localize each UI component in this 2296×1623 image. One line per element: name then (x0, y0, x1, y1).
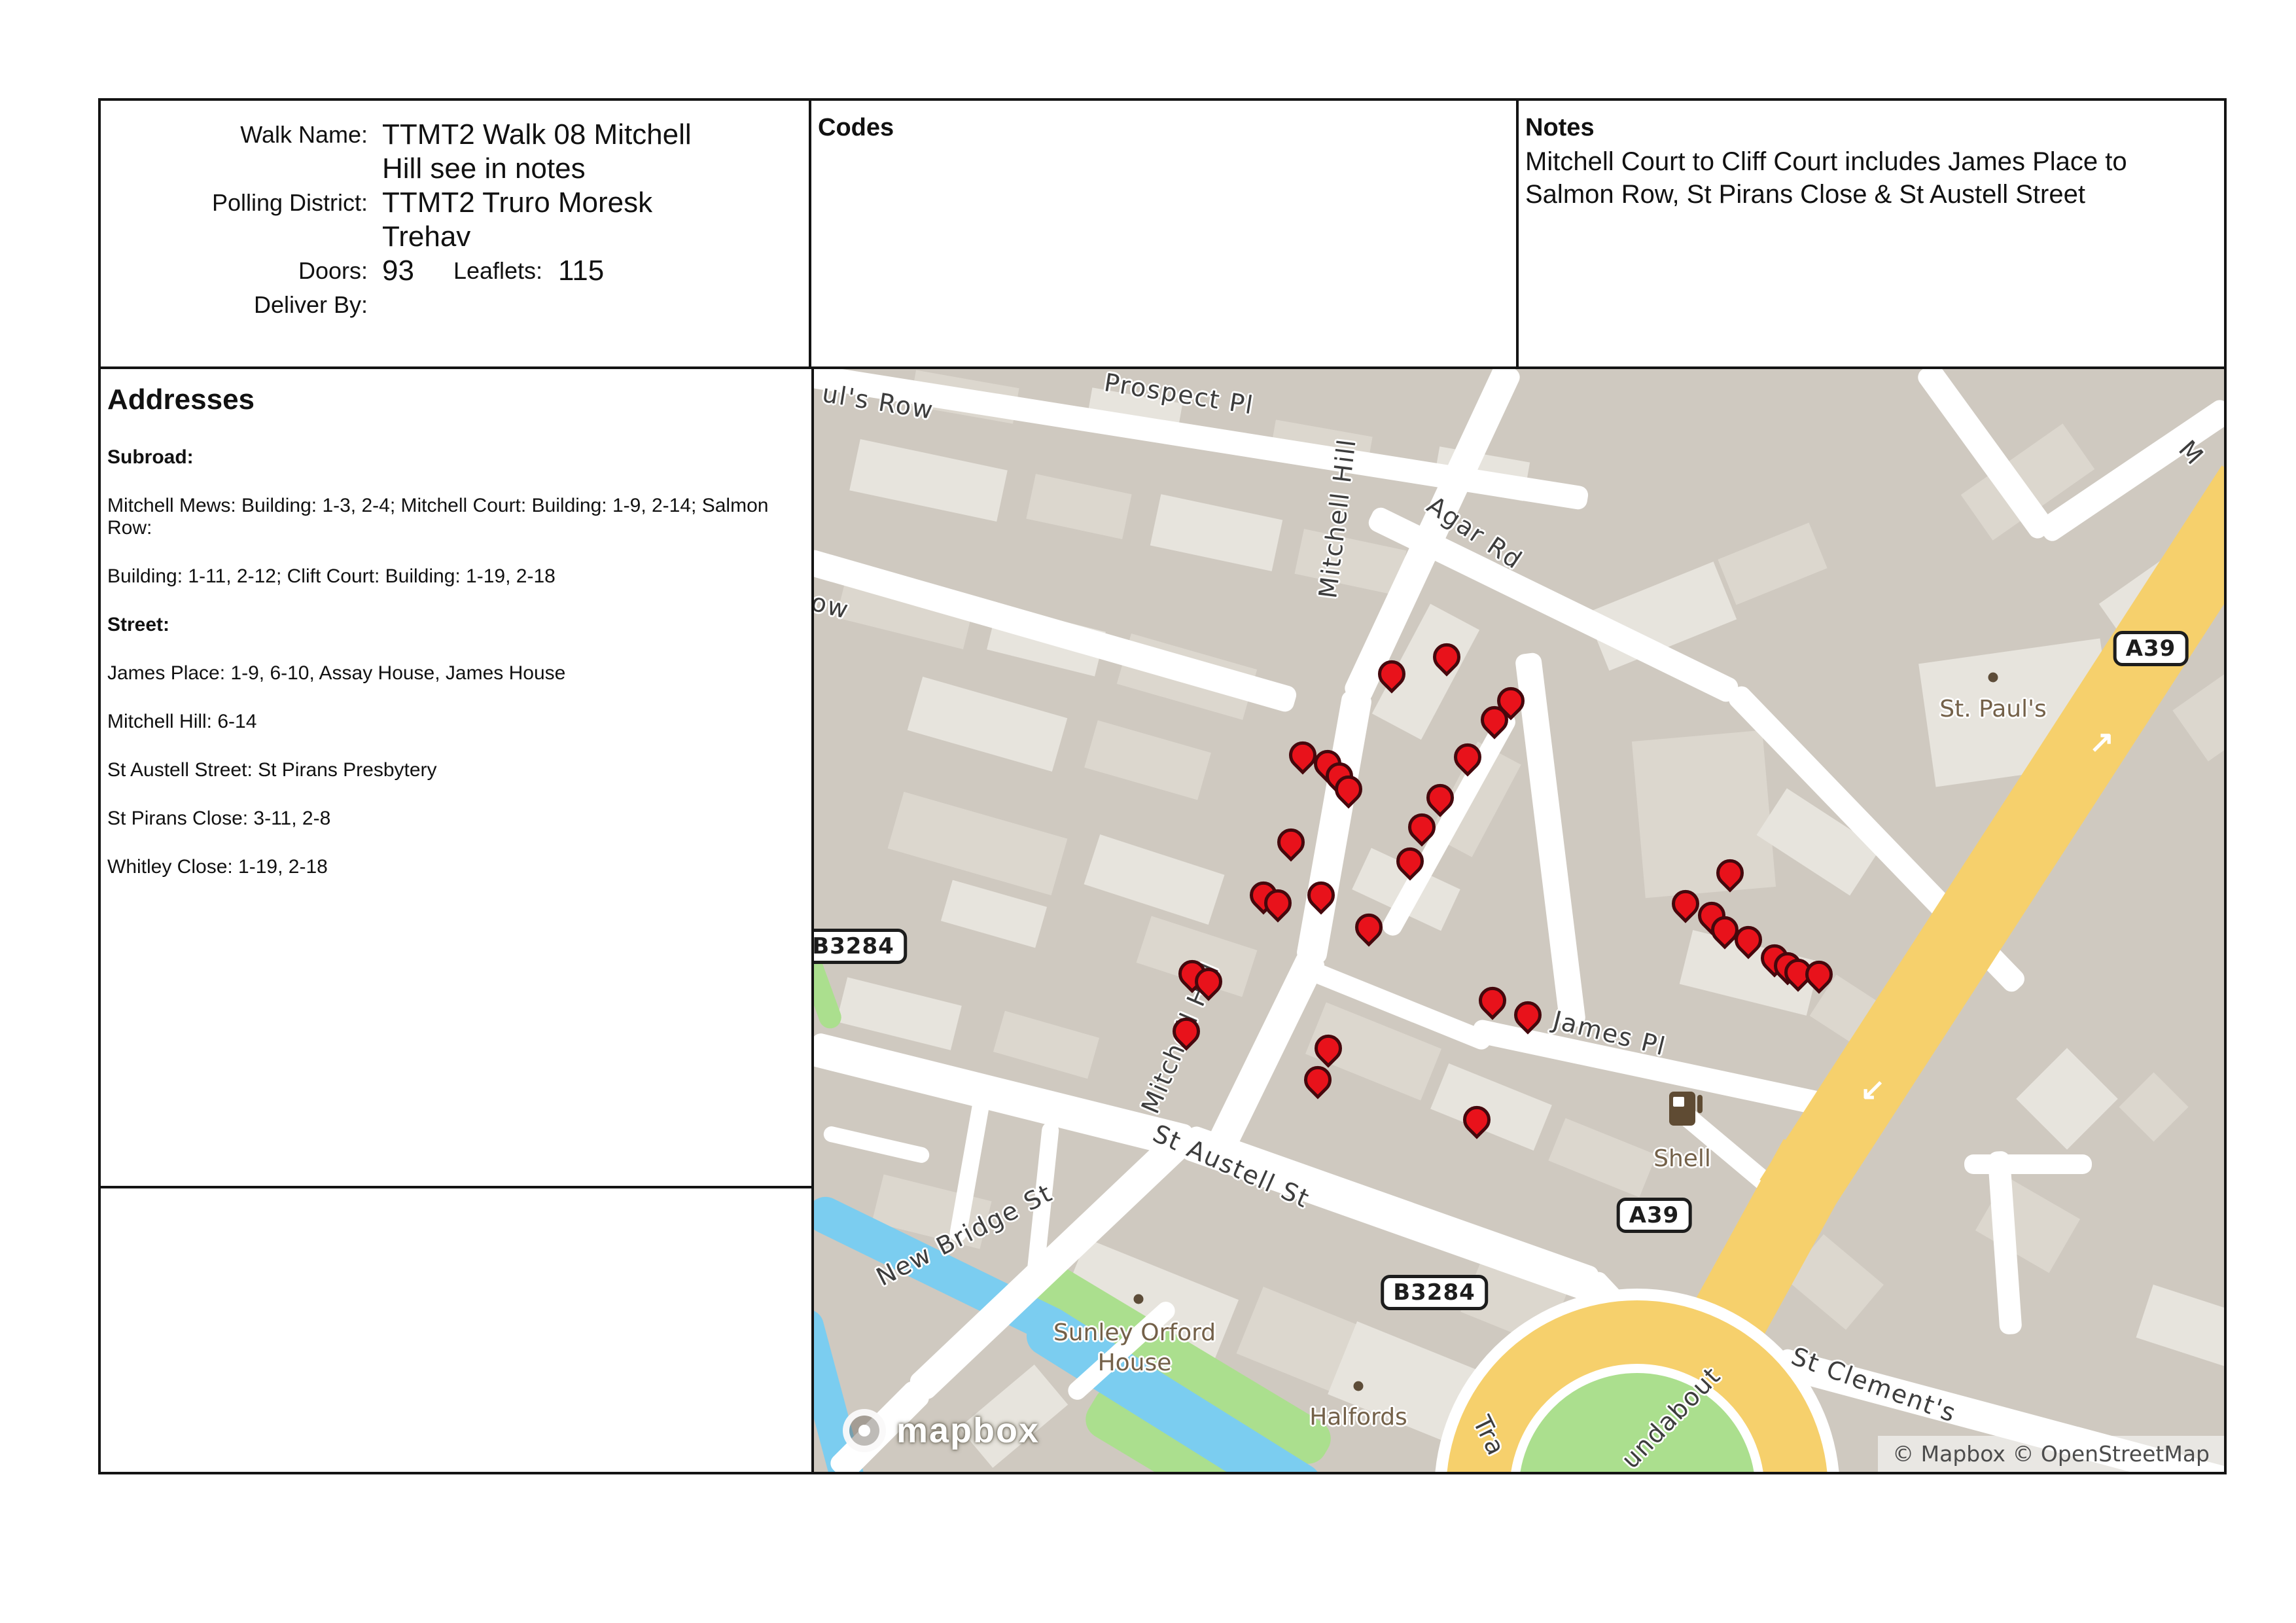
left-column: Addresses Subroad:Mitchell Mews: Buildin… (101, 369, 814, 1472)
header-row: Walk Name: TTMT2 Walk 08 Mitchell Hill s… (101, 101, 2224, 369)
walk-name-row: Walk Name: TTMT2 Walk 08 Mitchell Hill s… (101, 118, 809, 186)
address-line: James Place: 1-9, 6-10, Assay House, Jam… (107, 662, 804, 685)
map-building (1548, 1118, 1656, 1197)
leaflets-label: Leaflets: (453, 254, 542, 288)
walk-name-value: TTMT2 Walk 08 Mitchell Hill see in notes (382, 118, 717, 186)
map-building (1150, 494, 1282, 571)
notes-title: Notes (1525, 113, 2217, 143)
address-line: Mitchell Mews: Building: 1-3, 2-4; Mitch… (107, 495, 804, 539)
route-badge: B3284 (814, 929, 907, 964)
poi-label: Shell (1653, 1144, 1711, 1174)
fuel-station-icon (1669, 1092, 1695, 1126)
mapbox-logo: mapbox (843, 1409, 1040, 1452)
addresses-list: Subroad:Mitchell Mews: Building: 1-3, 2-… (107, 446, 804, 878)
map-road (1514, 652, 1586, 1029)
map-building (908, 677, 1068, 772)
map-road (1964, 1154, 2092, 1174)
mapbox-logo-text: mapbox (896, 1410, 1040, 1451)
body-row: Addresses Subroad:Mitchell Mews: Buildin… (101, 369, 2224, 1472)
address-line: Street: (107, 614, 804, 636)
address-line: Mitchell Hill: 6-14 (107, 711, 804, 733)
one-way-arrow-icon: ↗ (2089, 724, 2115, 759)
map-building (1430, 1063, 1552, 1150)
addresses-title: Addresses (107, 383, 804, 416)
map-marker-icon (1349, 908, 1388, 946)
one-way-arrow-icon: ↙ (1860, 1071, 1886, 1107)
address-line: Whitley Close: 1-19, 2-18 (107, 856, 804, 878)
polling-district-label: Polling District: (101, 186, 368, 220)
codes-box: Codes (811, 101, 1519, 366)
address-line: Building: 1-11, 2-12; Clift Court: Build… (107, 565, 804, 588)
map-building (1718, 523, 1827, 605)
map-building (2136, 1285, 2224, 1368)
map-building (2016, 1048, 2118, 1150)
walk-info-box: Walk Name: TTMT2 Walk 08 Mitchell Hill s… (101, 101, 811, 366)
map-building (2119, 1072, 2188, 1141)
poi-label: Sunley Orford House (1053, 1318, 1216, 1378)
address-line: St Austell Street: St Pirans Presbytery (107, 759, 804, 781)
map-building (1026, 474, 1131, 539)
map-marker-icon (1298, 1060, 1337, 1099)
map-building (1084, 834, 1225, 925)
map-marker-icon (1473, 981, 1511, 1020)
map-building (849, 439, 1008, 522)
doors-leaflets-row: Doors: 93 Leaflets: 115 (101, 254, 809, 288)
map-road (814, 548, 1298, 713)
doors-value: 93 (382, 254, 414, 288)
map-attribution: © Mapbox © OpenStreetMap (1878, 1436, 2224, 1472)
map-building (836, 977, 962, 1050)
route-badge: A39 (1617, 1198, 1692, 1233)
poi-label: St. Paul's (1939, 694, 2046, 724)
mapbox-logo-icon (843, 1409, 886, 1452)
polling-district-value: TTMT2 Truro Moresk Trehav (382, 186, 717, 254)
map-road (822, 1125, 930, 1165)
notes-box: Notes Mitchell Court to Cliff Court incl… (1519, 101, 2224, 366)
walk-name-label: Walk Name: (101, 118, 368, 152)
route-badge: B3284 (1381, 1275, 1488, 1310)
poi-dot-icon (1134, 1294, 1144, 1304)
notes-body: Mitchell Court to Cliff Court includes J… (1525, 145, 2217, 211)
walk-sheet-page: Walk Name: TTMT2 Walk 08 Mitchell Hill s… (0, 0, 2296, 1623)
walk-sheet: Walk Name: TTMT2 Walk 08 Mitchell Hill s… (98, 98, 2227, 1474)
deliver-by-label: Deliver By: (101, 288, 368, 322)
map: ↗↙ul's RowProspect PlowMitchell HillAgar… (814, 369, 2224, 1472)
route-badge: A39 (2113, 631, 2189, 666)
deliver-by-row: Deliver By: (101, 288, 809, 322)
map-building (993, 1011, 1099, 1079)
poi-label: Halfords (1309, 1402, 1407, 1433)
map-building (1632, 730, 1776, 899)
map-building (888, 792, 1068, 895)
polling-district-row: Polling District: TTMT2 Truro Moresk Tre… (101, 186, 809, 254)
blank-box (101, 1188, 811, 1472)
addresses-box: Addresses Subroad:Mitchell Mews: Buildin… (101, 369, 811, 1188)
address-line: Subroad: (107, 446, 804, 469)
codes-title: Codes (818, 113, 1510, 143)
map-building (1084, 721, 1211, 800)
leaflets-value: 115 (558, 254, 604, 288)
address-line: St Pirans Close: 3-11, 2-8 (107, 808, 804, 830)
map-marker-icon (1271, 823, 1310, 861)
doors-label: Doors: (101, 254, 368, 288)
poi-dot-icon (1354, 1382, 1364, 1391)
map-building (941, 880, 1047, 948)
poi-dot-icon (1988, 673, 1998, 683)
